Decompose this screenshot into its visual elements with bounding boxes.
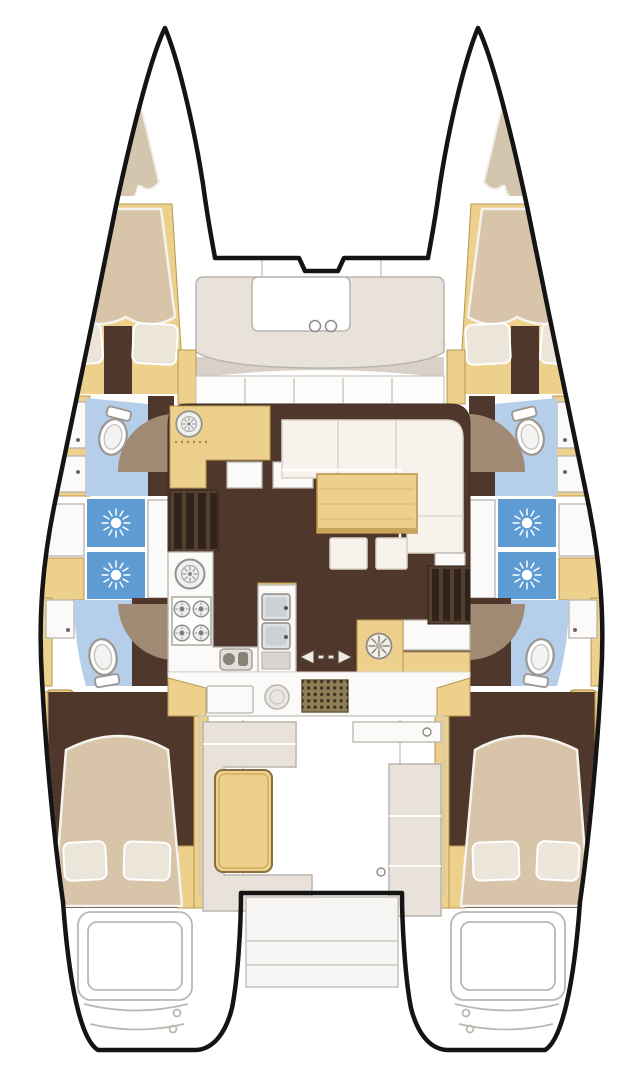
galley-locker <box>227 462 262 488</box>
table-shadow <box>317 528 417 533</box>
faucet-icon <box>220 649 252 670</box>
transom-platform <box>246 897 398 987</box>
drain-icon <box>377 868 385 876</box>
boat-floor-plan-page <box>0 0 643 1080</box>
companionway-steps-starboard <box>428 566 470 624</box>
burner-icon <box>193 625 209 641</box>
deck-grate <box>302 680 348 712</box>
ottoman <box>376 538 407 569</box>
cockpit-module <box>207 686 253 713</box>
forward-cockpit <box>196 277 444 378</box>
drain-icon <box>423 728 431 736</box>
deck-fill-icon <box>265 685 289 709</box>
boat-floor-plan <box>0 0 643 1080</box>
round-hob-icon <box>367 634 392 659</box>
salon <box>168 404 470 716</box>
burner-icon <box>193 601 209 617</box>
cupholder-icon <box>326 321 337 332</box>
cockpit-table <box>215 770 272 872</box>
aft-counter <box>403 652 470 672</box>
companionway-steps-port <box>170 490 218 552</box>
deckhouse-post <box>447 350 465 404</box>
round-sink-icon <box>176 560 205 589</box>
ottoman <box>330 538 367 569</box>
round-sink-icon <box>176 411 202 437</box>
burner-icon <box>174 601 190 617</box>
deckhouse-post <box>178 350 196 404</box>
settee-end <box>435 553 465 566</box>
burner-icon <box>174 625 190 641</box>
cupholder-icon <box>310 321 321 332</box>
drainboard <box>262 652 290 669</box>
